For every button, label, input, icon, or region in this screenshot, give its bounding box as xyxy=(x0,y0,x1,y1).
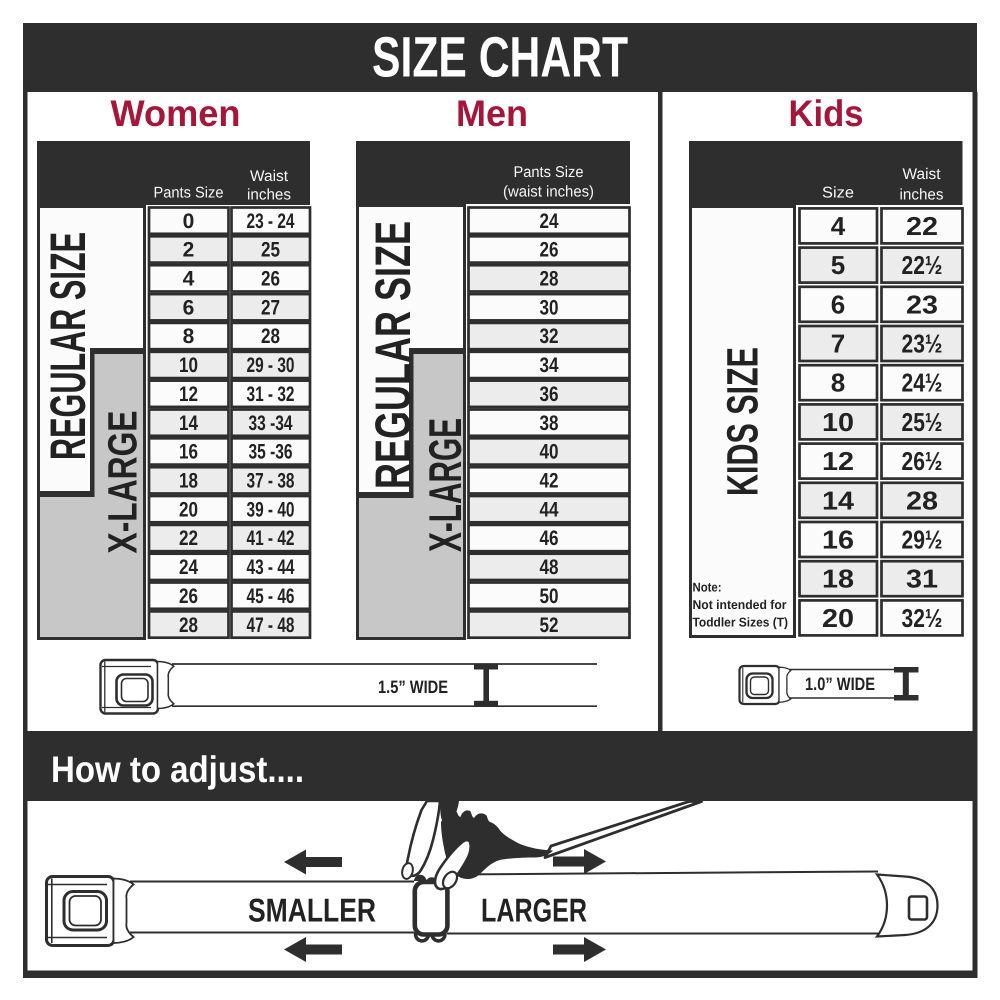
svg-text:25: 25 xyxy=(261,239,280,262)
svg-text:20: 20 xyxy=(822,603,854,633)
svg-text:24½: 24½ xyxy=(902,368,943,398)
svg-text:How to adjust....: How to adjust.... xyxy=(51,749,304,790)
svg-text:SIZE CHART: SIZE CHART xyxy=(372,26,628,90)
svg-text:6: 6 xyxy=(183,296,195,319)
svg-text:8: 8 xyxy=(183,325,195,348)
svg-text:Note:: Note: xyxy=(693,580,722,595)
svg-text:Size: Size xyxy=(822,185,854,202)
svg-text:47 - 48: 47 - 48 xyxy=(247,614,295,637)
svg-text:42: 42 xyxy=(540,470,559,493)
svg-text:Pants Size: Pants Size xyxy=(514,164,584,181)
svg-text:1.0” WIDE: 1.0” WIDE xyxy=(805,674,875,694)
svg-text:18: 18 xyxy=(822,564,854,594)
svg-text:4: 4 xyxy=(183,268,195,291)
svg-text:KIDS SIZE: KIDS SIZE xyxy=(719,347,768,496)
svg-text:36: 36 xyxy=(540,383,559,406)
svg-text:Not intended for: Not intended for xyxy=(693,597,787,612)
svg-text:32: 32 xyxy=(540,325,559,348)
svg-text:29 - 30: 29 - 30 xyxy=(247,354,295,377)
svg-text:Kids: Kids xyxy=(789,93,864,134)
svg-text:34: 34 xyxy=(540,354,559,377)
svg-text:REGULAR SIZE: REGULAR SIZE xyxy=(40,232,96,460)
svg-text:X-LARGE: X-LARGE xyxy=(100,411,146,554)
svg-text:20: 20 xyxy=(179,498,198,521)
svg-text:Waist: Waist xyxy=(903,166,942,183)
svg-text:16: 16 xyxy=(179,441,198,464)
svg-text:10: 10 xyxy=(179,354,198,377)
svg-text:46: 46 xyxy=(540,527,559,550)
svg-text:16: 16 xyxy=(822,525,854,555)
svg-text:inches: inches xyxy=(247,187,291,204)
svg-text:35 -36: 35 -36 xyxy=(249,441,293,464)
svg-text:Women: Women xyxy=(111,93,241,134)
svg-text:37 - 38: 37 - 38 xyxy=(247,470,295,493)
svg-text:14: 14 xyxy=(179,412,198,435)
svg-text:22½: 22½ xyxy=(902,250,943,280)
svg-text:5: 5 xyxy=(831,250,845,280)
svg-text:8: 8 xyxy=(831,368,845,398)
svg-text:0: 0 xyxy=(183,210,195,233)
svg-text:26½: 26½ xyxy=(902,446,943,476)
svg-text:31: 31 xyxy=(906,564,938,594)
svg-text:inches: inches xyxy=(900,187,944,204)
svg-text:10: 10 xyxy=(822,407,854,437)
svg-text:4: 4 xyxy=(831,211,846,241)
svg-text:REGULAR SIZE: REGULAR SIZE xyxy=(365,221,421,489)
svg-text:29½: 29½ xyxy=(902,525,943,555)
svg-text:(waist inches): (waist inches) xyxy=(503,184,594,201)
svg-text:6: 6 xyxy=(831,289,845,319)
svg-text:25½: 25½ xyxy=(902,407,943,437)
svg-text:28: 28 xyxy=(179,614,198,637)
svg-text:2: 2 xyxy=(183,239,195,262)
svg-text:48: 48 xyxy=(540,556,559,579)
svg-text:38: 38 xyxy=(540,412,559,435)
svg-text:Men: Men xyxy=(456,93,528,134)
svg-text:50: 50 xyxy=(540,585,559,608)
svg-text:31 - 32: 31 - 32 xyxy=(247,383,295,406)
svg-text:28: 28 xyxy=(906,485,938,515)
svg-text:LARGER: LARGER xyxy=(481,892,587,929)
svg-text:28: 28 xyxy=(261,325,280,348)
svg-text:18: 18 xyxy=(179,470,198,493)
svg-text:45 - 46: 45 - 46 xyxy=(247,585,295,608)
svg-text:44: 44 xyxy=(540,498,559,521)
svg-text:39 - 40: 39 - 40 xyxy=(247,498,295,521)
svg-text:26: 26 xyxy=(179,585,198,608)
svg-text:23½: 23½ xyxy=(902,329,943,359)
svg-text:52: 52 xyxy=(540,614,559,637)
svg-text:1.5” WIDE: 1.5” WIDE xyxy=(378,677,448,697)
svg-text:33 -34: 33 -34 xyxy=(249,412,293,435)
svg-text:24: 24 xyxy=(179,556,198,579)
svg-text:40: 40 xyxy=(540,441,559,464)
svg-text:27: 27 xyxy=(261,296,280,319)
svg-text:22: 22 xyxy=(179,527,198,550)
svg-text:14: 14 xyxy=(822,485,855,515)
svg-text:12: 12 xyxy=(179,383,198,406)
svg-text:Waist: Waist xyxy=(250,168,289,185)
svg-text:Pants Size: Pants Size xyxy=(154,185,224,202)
svg-text:41 - 42: 41 - 42 xyxy=(247,527,295,550)
svg-text:43 - 44: 43 - 44 xyxy=(247,556,295,579)
svg-text:28: 28 xyxy=(540,268,559,291)
svg-text:30: 30 xyxy=(540,296,559,319)
svg-text:23 - 24: 23 - 24 xyxy=(247,210,295,233)
svg-text:7: 7 xyxy=(831,329,845,359)
svg-text:12: 12 xyxy=(822,446,854,476)
svg-text:X-LARGE: X-LARGE xyxy=(419,418,471,552)
svg-text:24: 24 xyxy=(540,210,559,233)
svg-text:32½: 32½ xyxy=(902,603,943,633)
svg-text:26: 26 xyxy=(540,239,559,262)
svg-text:SMALLER: SMALLER xyxy=(248,892,376,929)
svg-text:22: 22 xyxy=(906,211,938,241)
svg-text:23: 23 xyxy=(906,289,938,319)
svg-text:26: 26 xyxy=(261,268,280,291)
svg-text:Toddler Sizes (T): Toddler Sizes (T) xyxy=(693,615,789,630)
